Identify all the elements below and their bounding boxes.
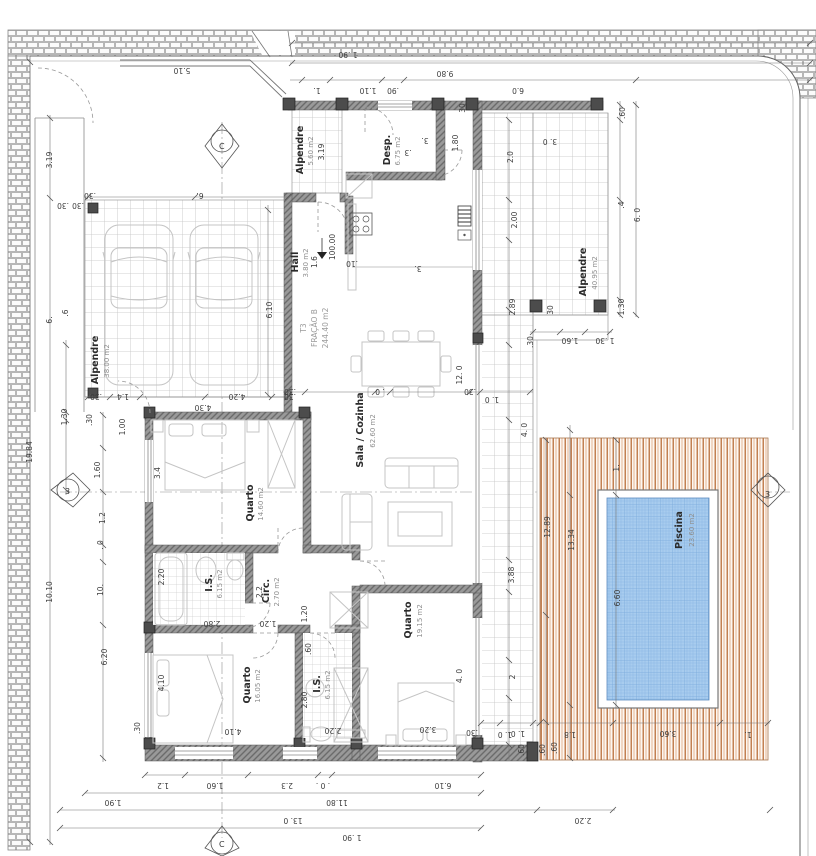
fraction-type: T3 xyxy=(299,323,308,334)
dim-label: 6.20 xyxy=(100,648,109,665)
dim-label: 4. 0 xyxy=(520,423,529,438)
room-label: Alpendre xyxy=(295,126,306,175)
dim-label: . 0 xyxy=(375,387,385,396)
dim-label: 1. xyxy=(744,730,751,739)
dim-label: 2.20 xyxy=(574,816,591,825)
dim-label: 1.60 xyxy=(93,461,102,478)
room-area: 16.05 m2 xyxy=(254,669,262,703)
dim-label: 6.60 xyxy=(613,589,622,606)
bed xyxy=(386,683,466,745)
dim-label: 1.2 xyxy=(98,512,107,524)
dim-label: 2.89 xyxy=(508,298,517,315)
dim-label: 1. xyxy=(313,86,320,95)
section-letter: C xyxy=(219,142,225,151)
dim-label: 1.8 xyxy=(564,730,576,739)
dim-label: 1 .90 xyxy=(342,833,361,842)
dim-label: 1.10 xyxy=(359,86,376,95)
room-area: 6.15 m2 xyxy=(216,569,224,598)
dim-label: 3. 0 xyxy=(543,137,558,146)
dim-label: .90 xyxy=(387,86,399,95)
dim-label: 1.90 xyxy=(104,798,121,807)
sidewalk-corner xyxy=(758,30,816,98)
dim-label: .30 xyxy=(526,336,535,348)
dim-label: .6 xyxy=(61,309,70,316)
dim-label: 3.19 xyxy=(317,143,326,160)
dim-label: 2.00 xyxy=(510,211,519,228)
dim-label: 1.30 xyxy=(60,408,69,425)
bed xyxy=(153,655,233,743)
room-label: I.S. xyxy=(204,574,215,592)
dim-label: 2.0 xyxy=(506,151,515,163)
dim-label: .60 xyxy=(304,643,313,655)
window xyxy=(473,345,482,583)
dim-label: .60 xyxy=(517,744,526,756)
dim-label: 2.3 xyxy=(281,781,293,790)
window xyxy=(378,101,412,110)
window xyxy=(378,747,456,759)
room-label: Alpendre xyxy=(578,248,589,297)
dim-label: 6. xyxy=(196,191,203,200)
section-letter: C xyxy=(219,840,225,849)
dim-label: 4.10 xyxy=(157,674,166,691)
dim-label: .60 xyxy=(550,742,559,754)
room-label: Hall xyxy=(290,252,301,273)
room-area: 23.60 m2 xyxy=(688,513,696,547)
fence-channel xyxy=(120,60,286,97)
dim-label: .30 xyxy=(90,392,102,401)
dim-label: 4.10 xyxy=(224,727,241,736)
dim-label: .30 xyxy=(466,728,478,737)
floor-plan-drawing: C C 3 3 Alpendre 5.60 m2 Desp. 6.75 m2 H… xyxy=(0,0,816,856)
dim-label: 2 xyxy=(508,674,517,679)
lawn-edge-lines xyxy=(533,340,537,760)
dim-label: 3.60 xyxy=(659,729,676,738)
room-area: 5.60 m2 xyxy=(307,136,315,165)
room-label: I.S. xyxy=(312,675,323,693)
dim-label: . 0 . xyxy=(316,781,330,790)
dim-label: .30 xyxy=(57,201,69,210)
dim-label: 1.00 xyxy=(118,418,127,435)
dim-label: 1 .90 xyxy=(338,50,357,59)
dim-label: .30 xyxy=(464,387,476,396)
window xyxy=(145,653,153,737)
wardrobe-diagonals xyxy=(268,420,295,488)
dim-label: 13. 0 xyxy=(283,816,302,825)
dim-label: .30 xyxy=(284,387,296,396)
section-letter: 3 xyxy=(65,487,70,496)
dim-label: .30 xyxy=(84,191,96,200)
dim-label: 1.60 xyxy=(206,781,223,790)
dim-label: .10 xyxy=(346,259,358,268)
dim-label: 4. 0 xyxy=(455,669,464,684)
dim-label: . 0 xyxy=(96,540,105,550)
dim-label: 5.10 xyxy=(173,66,190,75)
room-area: 3.80 m2 xyxy=(302,248,310,277)
dim-label: .30 xyxy=(85,414,94,426)
dim-label: 4.30 xyxy=(194,403,211,412)
dim-label: 1.30 xyxy=(617,298,626,315)
dim-label: 11.80 xyxy=(326,798,348,807)
dim-label: 12. 0 xyxy=(455,365,464,384)
dim-label: 3.88 xyxy=(507,566,516,583)
dim-label: 2.80 xyxy=(300,691,309,708)
room-label: Desp. xyxy=(382,135,393,165)
dim-label: 2.20 xyxy=(324,726,341,735)
window xyxy=(175,747,233,759)
dim-label: 1. 0 xyxy=(498,730,513,739)
room-label: Sala / Cozinha xyxy=(355,392,366,467)
dim-label: 6.0 xyxy=(512,86,524,95)
dim-label: 30 xyxy=(458,103,467,113)
bed xyxy=(151,420,259,490)
dim-label: 2.2 xyxy=(255,586,264,598)
room-label: Quarto xyxy=(403,601,414,638)
dim-label: 1 .30 xyxy=(595,336,614,345)
dim-label: 6.10 xyxy=(434,781,451,790)
dim-label: 30 xyxy=(546,305,555,315)
dim-label: .30 xyxy=(133,722,142,734)
bath1-floor xyxy=(153,553,245,625)
window xyxy=(473,170,482,270)
level-marker xyxy=(317,238,327,259)
dim-label: 1. xyxy=(612,464,621,471)
dim-label: 1.6 xyxy=(310,256,319,268)
dim-label: 1.20 xyxy=(259,619,276,628)
fraction-name: FRAÇÃO B xyxy=(310,309,319,347)
dim-label: 3.4 xyxy=(153,467,162,479)
section-letter: 3 xyxy=(765,490,770,499)
dim-label: 1.60 xyxy=(561,336,578,345)
dim-label: 19.84 xyxy=(25,441,34,463)
dining-table xyxy=(351,331,451,397)
window xyxy=(473,618,482,735)
dim-label: 1. 0 xyxy=(485,395,500,404)
dim-label: 9.80 xyxy=(436,69,453,78)
rug xyxy=(388,502,452,546)
room-label: Quarto xyxy=(245,484,256,521)
dim-label: 3.19 xyxy=(45,151,54,168)
radiator xyxy=(458,206,471,240)
dim-label: 6. xyxy=(45,316,54,323)
dim-label: 3.20 xyxy=(419,725,436,734)
stove xyxy=(350,213,372,235)
room-area: 6.75 m2 xyxy=(394,136,402,165)
room-area: 19.15 m2 xyxy=(416,604,424,638)
dim-label: 1.2 xyxy=(157,781,169,790)
dim-label: 1.80 xyxy=(451,134,460,151)
dim-label: 3. xyxy=(421,136,428,145)
dim-label: .60 xyxy=(618,107,627,119)
dim-label: 1.4 xyxy=(117,392,129,401)
dim-label: 13.34 xyxy=(567,529,576,551)
dim-label: 12.89 xyxy=(543,516,552,538)
dim-label: 10. xyxy=(96,584,105,596)
dim-label: 6.10 xyxy=(265,301,274,318)
room-area: 6.15 m2 xyxy=(324,670,332,699)
dim-label: 3. xyxy=(414,264,421,273)
dim-label: .30 xyxy=(72,201,84,210)
dim-label: .3 xyxy=(404,148,411,157)
room-area: 62.60 m2 xyxy=(369,414,377,448)
closet-diagonals xyxy=(330,592,368,628)
level-value: 100.00 xyxy=(328,234,337,260)
room-area: 14.60 m2 xyxy=(257,487,265,521)
room-area: 38.00 m2 xyxy=(103,344,111,378)
room-label: Quarto xyxy=(242,666,253,703)
fraction-area: 244.40 m2 xyxy=(321,307,330,348)
dim-label: 2.20 xyxy=(157,568,166,585)
section-marker-left: 3 xyxy=(51,473,90,507)
window xyxy=(283,747,317,759)
floor-plan-sheet: C C 3 3 Alpendre 5.60 m2 Desp. 6.75 m2 H… xyxy=(0,0,816,856)
room-area: 40.95 m2 xyxy=(591,256,599,290)
kitchen-appliances xyxy=(350,206,471,240)
room-area: 2.70 m2 xyxy=(273,577,281,606)
dim-label: 2.80 xyxy=(203,619,220,628)
room-label: Piscina xyxy=(674,511,685,549)
dim-label: 1.20 xyxy=(300,605,309,622)
dim-label: .4 xyxy=(617,201,626,208)
gate-swing-arc xyxy=(38,68,93,123)
room-label: Alpendre xyxy=(90,336,101,385)
dim-label: 4.20 xyxy=(228,392,245,401)
dim-label: 10.10 xyxy=(45,581,54,603)
window xyxy=(145,440,153,502)
dim-label: 6. 0 xyxy=(633,208,642,223)
dim-label: .60 xyxy=(538,744,547,756)
side-path xyxy=(35,118,84,412)
